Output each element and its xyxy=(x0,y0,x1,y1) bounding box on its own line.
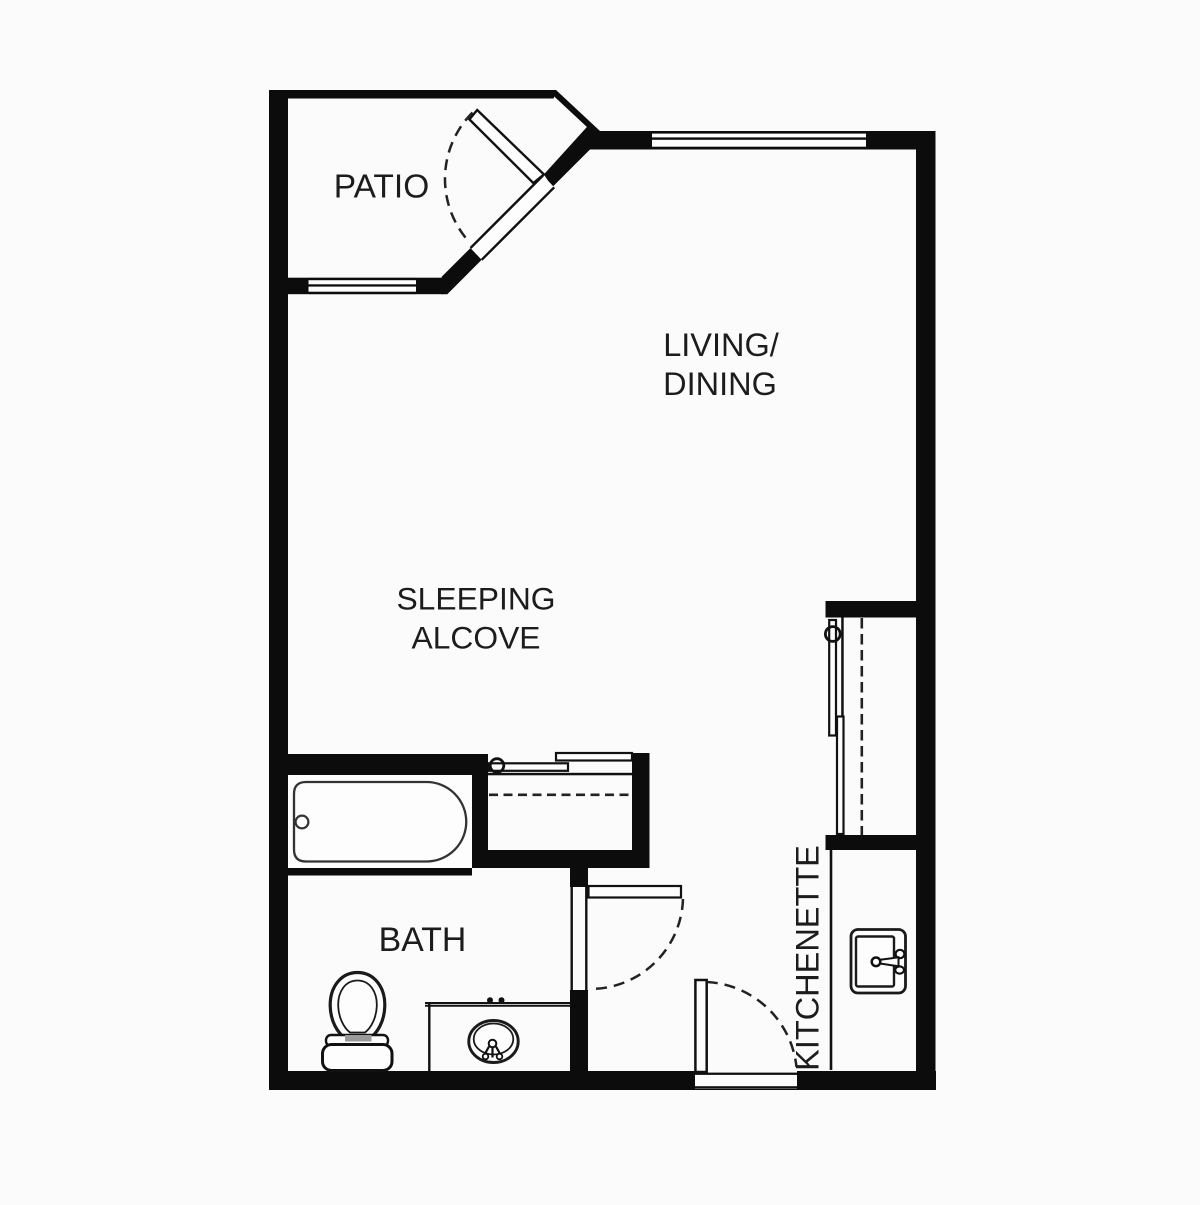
svg-text:LIVING/: LIVING/ xyxy=(663,327,780,363)
svg-text:BATH: BATH xyxy=(379,921,467,959)
svg-text:SLEEPING: SLEEPING xyxy=(396,581,555,617)
svg-text:PATIO: PATIO xyxy=(334,169,430,206)
svg-text:ALCOVE: ALCOVE xyxy=(411,620,540,656)
svg-text:KITCHENETTE: KITCHENETTE xyxy=(790,845,826,1071)
svg-text:DINING: DINING xyxy=(663,366,777,402)
